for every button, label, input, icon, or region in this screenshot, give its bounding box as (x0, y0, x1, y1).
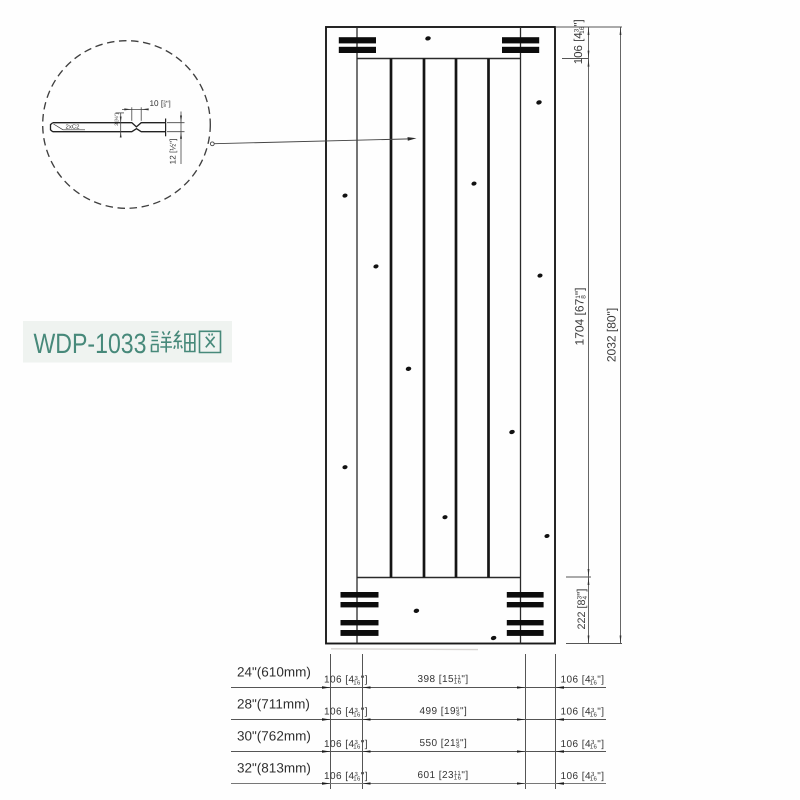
svg-text:10 [38"]: 10 [38"] (150, 99, 171, 108)
svg-text:32"(813mm): 32"(813mm) (237, 761, 311, 776)
svg-text:12 [½"]: 12 [½"] (169, 139, 178, 165)
svg-text:106 [4316"]: 106 [4316"] (561, 707, 605, 719)
svg-text:106 [4316"]: 106 [4316"] (324, 771, 368, 783)
svg-text:550 [2158"]: 550 [2158"] (420, 738, 468, 750)
svg-text:3 [⅛"]: 3 [⅛"] (114, 113, 120, 125)
svg-text:106 [4316"]: 106 [4316"] (324, 675, 368, 687)
svg-text:398 [151116"]: 398 [151116"] (418, 674, 469, 686)
svg-text:222 [834"]: 222 [834"] (576, 589, 589, 630)
svg-text:24"(610mm): 24"(610mm) (237, 665, 311, 680)
svg-text:WDP-1033: WDP-1033 (34, 328, 147, 359)
svg-text:499 [1958"]: 499 [1958"] (420, 706, 468, 718)
svg-text:106 [4316"]: 106 [4316"] (561, 771, 605, 783)
svg-text:601 [231116"]: 601 [231116"] (418, 770, 469, 782)
svg-text:106 [4316"]: 106 [4316"] (324, 739, 368, 751)
svg-text:106 [4316"]: 106 [4316"] (324, 707, 368, 719)
svg-text:30"(762mm): 30"(762mm) (237, 729, 311, 744)
svg-text:1704 [6718"]: 1704 [6718"] (573, 288, 588, 346)
svg-text:2032 [80"]: 2032 [80"] (605, 308, 619, 362)
svg-text:106 [4316"]: 106 [4316"] (561, 739, 605, 751)
svg-text:106 [4316"]: 106 [4316"] (573, 19, 586, 64)
svg-text:28"(711mm): 28"(711mm) (237, 697, 310, 712)
svg-text:106 [4316"]: 106 [4316"] (561, 675, 605, 687)
